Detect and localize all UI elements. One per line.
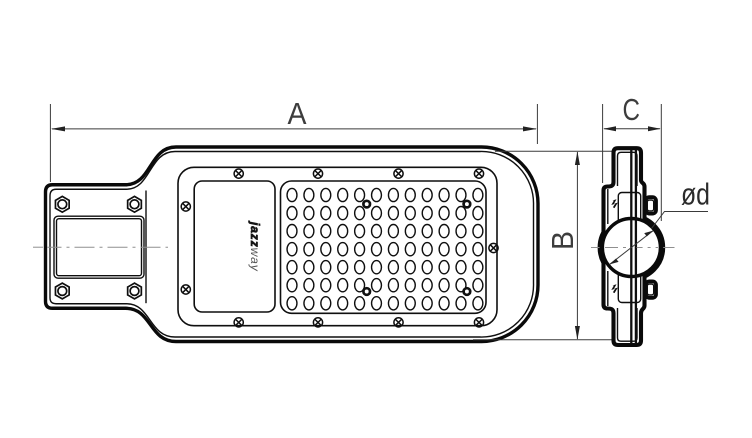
svg-text:C: C: [623, 92, 641, 127]
svg-text:A: A: [288, 96, 307, 131]
svg-text:ød: ød: [681, 177, 710, 212]
svg-text:B: B: [545, 231, 580, 250]
svg-text:jazzway: jazzway: [248, 220, 262, 272]
